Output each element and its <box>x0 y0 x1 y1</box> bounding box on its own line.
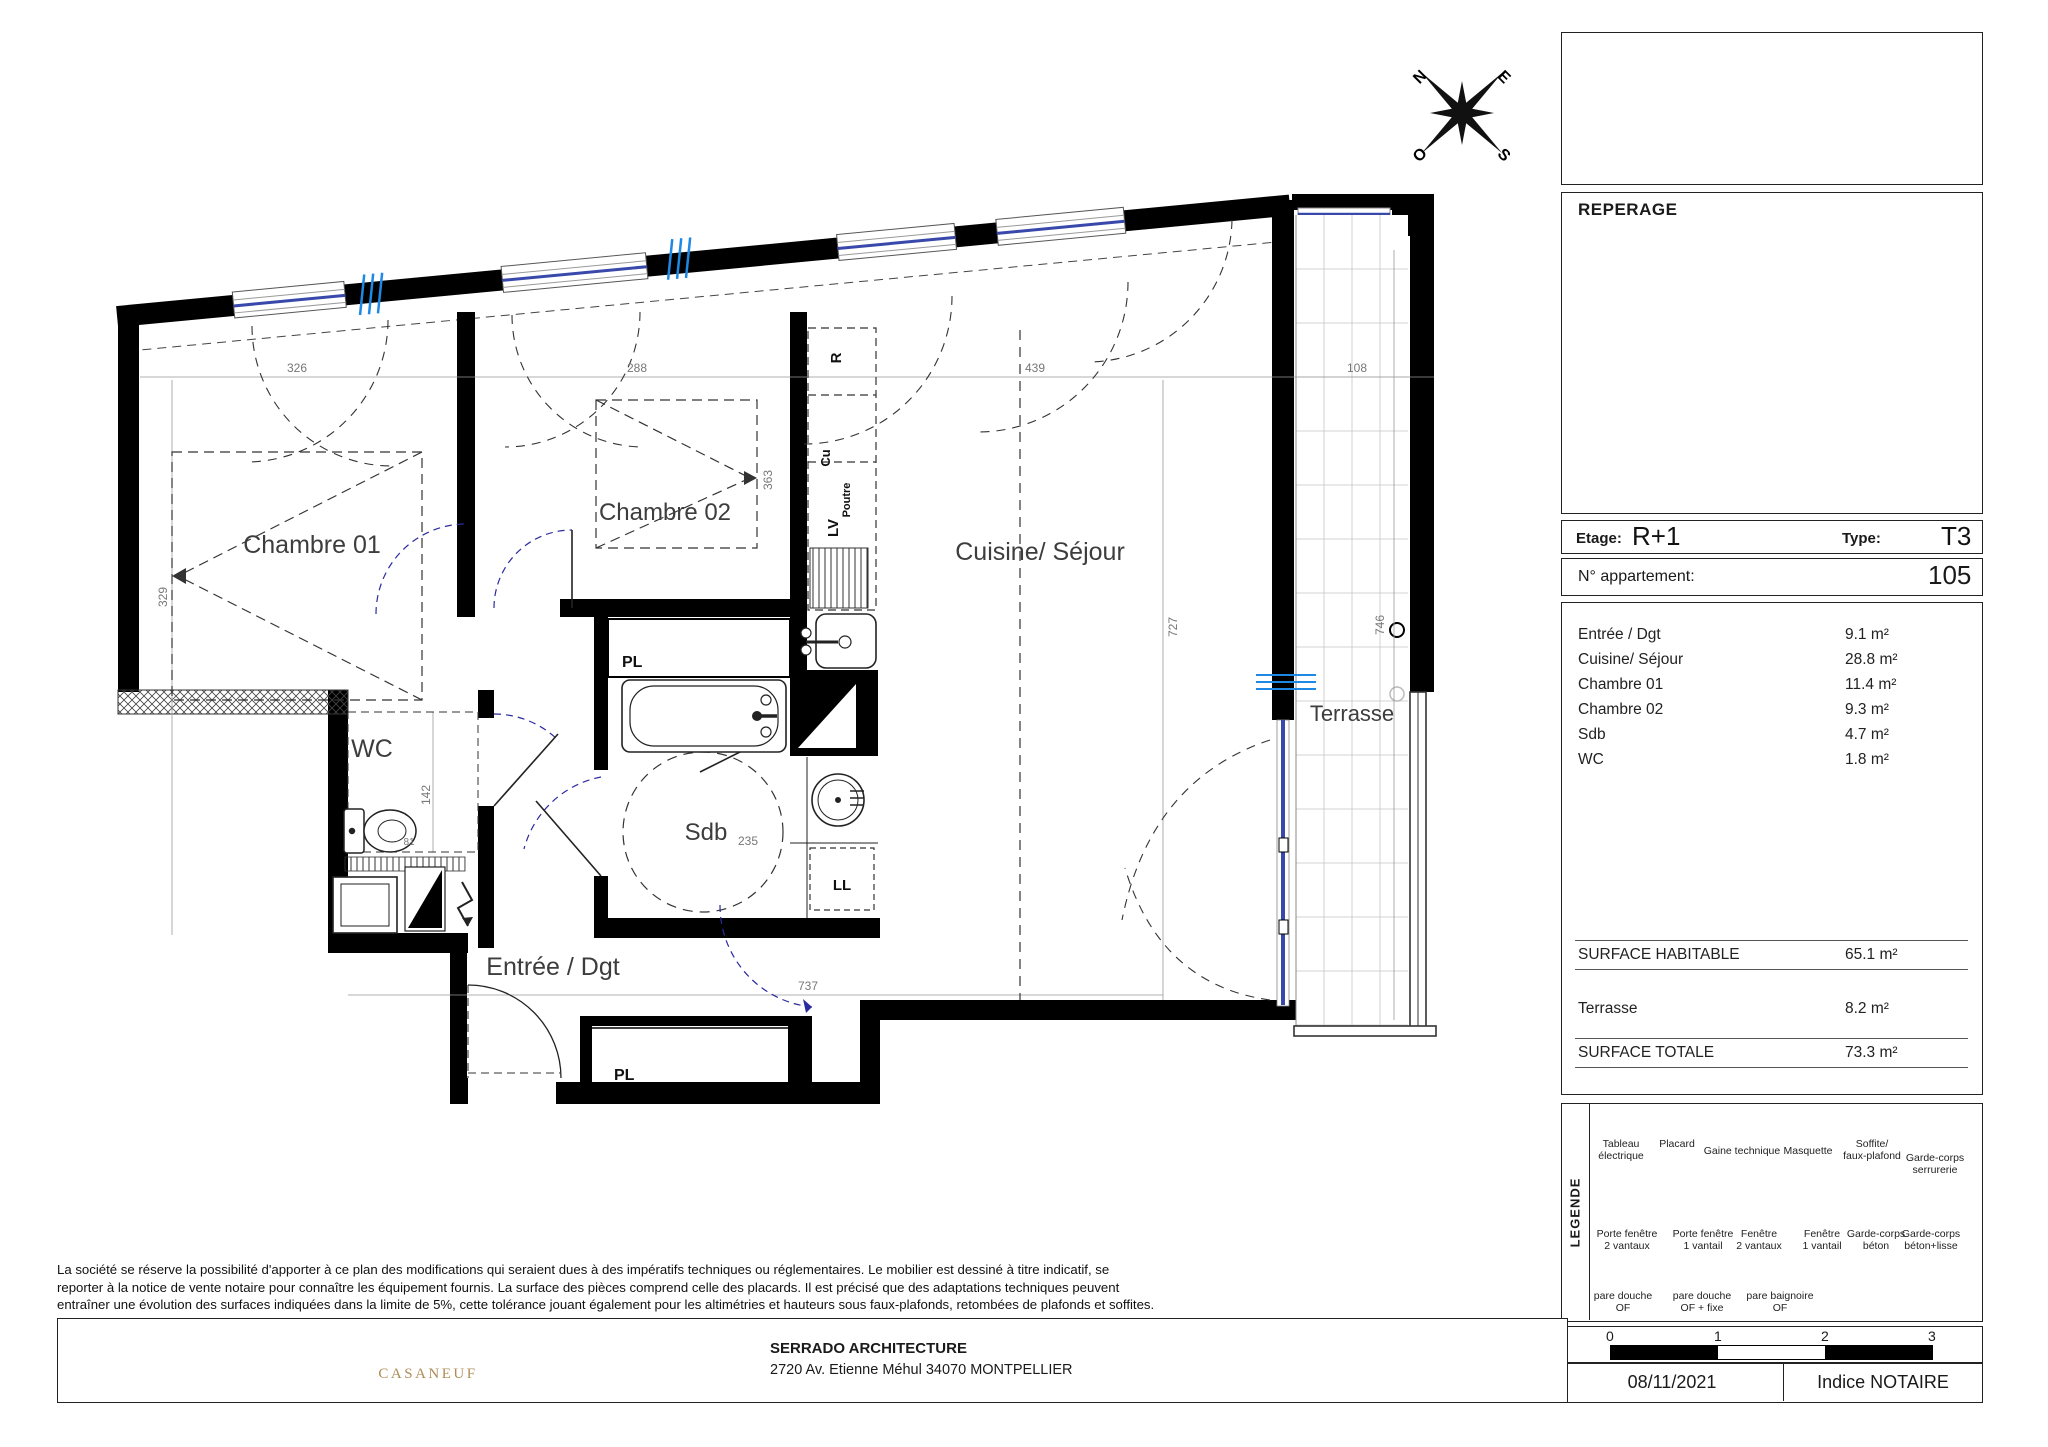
hand-basin <box>333 877 397 933</box>
type-value: T3 <box>1941 521 1971 552</box>
room-label-chambre02: Chambre 02 <box>599 499 731 526</box>
casaneuf-wordmark: CASANEUF <box>358 1366 498 1383</box>
surface-row-value: 28.8 m² <box>1845 651 1898 669</box>
etage-value: R+1 <box>1632 521 1680 552</box>
reperage-box <box>1561 192 1983 514</box>
room-label-cuisine-sejour: Cuisine/ Séjour <box>955 538 1125 566</box>
equip-label-pl-sdb: PL <box>622 654 643 671</box>
apartment-value: 105 <box>1928 560 1971 591</box>
dim-142: 142 <box>419 785 433 805</box>
dim-727: 727 <box>1166 617 1180 637</box>
dim-439: 439 <box>1025 361 1045 375</box>
legend-label: Garde-corps serrurerie <box>1890 1152 1980 1176</box>
surface-row-value: 9.3 m² <box>1845 701 1889 719</box>
exterior-top-wall <box>115 181 1293 352</box>
surface-row-label: Cuisine/ Séjour <box>1578 651 1683 669</box>
scale-bar <box>1610 1345 1933 1360</box>
surface-row-label: Sdb <box>1578 726 1606 744</box>
reperage-title: REPERAGE <box>1578 200 1677 220</box>
equip-label-lv: LV <box>825 519 842 537</box>
equip-label-poutre: Poutre <box>841 483 853 518</box>
equip-label-r: R <box>828 352 845 363</box>
legend-label: Garde-corps béton+lisse <box>1886 1228 1976 1252</box>
room-label-terrasse: Terrasse <box>1310 701 1394 726</box>
window <box>501 253 648 293</box>
bathtub <box>622 680 786 752</box>
surface-row-label: Chambre 01 <box>1578 676 1663 694</box>
type-label: Type: <box>1842 530 1881 547</box>
room-label-sdb: Sdb <box>685 819 728 846</box>
dim-288: 288 <box>627 361 647 375</box>
window <box>837 223 957 260</box>
architect-address: 2720 Av. Etienne Méhul 34070 MONTPELLIER <box>770 1362 1073 1378</box>
footer-credits-box <box>57 1318 1568 1403</box>
surface-terrasse-label: Terrasse <box>1578 1000 1637 1018</box>
plan-date: 08/11/2021 <box>1561 1372 1783 1393</box>
legend-label: pare douche OF <box>1578 1290 1668 1314</box>
scale-segment <box>1611 1346 1718 1359</box>
disclaimer-text: La société se réserve la possibilité d'a… <box>57 1261 1155 1313</box>
surface-totale-label: SURFACE TOTALE <box>1578 1044 1714 1062</box>
dim-329: 329 <box>156 587 170 607</box>
scale-tick: 3 <box>1928 1328 1936 1344</box>
surface-row-label: WC <box>1578 751 1604 769</box>
dim-363: 363 <box>761 470 775 490</box>
surface-row-value: 1.8 m² <box>1845 751 1889 769</box>
legend-title: LEGENDE <box>1568 1178 1583 1248</box>
surface-row-value: 11.4 m² <box>1845 676 1896 694</box>
kitchen-worktop-hatch <box>810 548 868 608</box>
dim-746: 746 <box>1373 615 1387 635</box>
hatched-wall <box>118 690 348 714</box>
etage-type-box <box>1561 520 1983 554</box>
scale-segment <box>1718 1346 1825 1359</box>
surface-totale-row: SURFACE TOTALE 73.3 m² <box>1575 1038 1968 1068</box>
architect-name: SERRADO ARCHITECTURE <box>770 1340 967 1357</box>
scale-tick: 1 <box>1714 1328 1722 1344</box>
surface-row-label: Chambre 02 <box>1578 701 1663 719</box>
surface-totale-value: 73.3 m² <box>1845 1044 1898 1062</box>
room-label-wc: WC <box>351 735 393 763</box>
window <box>232 281 346 317</box>
tableau-electrique-symbol <box>458 882 473 926</box>
etage-label: Etage: <box>1576 530 1622 547</box>
gaine-wedge <box>405 867 445 931</box>
legend-divider <box>1589 1104 1590 1320</box>
dim-737: 737 <box>798 979 818 993</box>
kitchen-sink <box>801 614 876 668</box>
floor-plan-sheet: { "colors": { "accent_red": "#E8231D", "… <box>0 0 2048 1447</box>
equip-label-cu: Cu <box>818 449 833 466</box>
title-cartouche-box <box>1561 32 1983 185</box>
dim-326: 326 <box>287 361 307 375</box>
dim-235: 235 <box>738 834 758 848</box>
room-label-entree: Entrée / Dgt <box>486 953 619 981</box>
surface-habitable-label: SURFACE HABITABLE <box>1578 946 1740 964</box>
surface-habitable-row: SURFACE HABITABLE 65.1 m² <box>1575 940 1968 970</box>
surface-row-label: Entrée / Dgt <box>1578 626 1661 644</box>
scale-tick: 2 <box>1821 1328 1829 1344</box>
surface-habitable-value: 65.1 m² <box>1845 946 1898 964</box>
dim-108: 108 <box>1347 361 1367 375</box>
room-label-chambre01: Chambre 01 <box>243 531 381 559</box>
window <box>996 207 1126 245</box>
legend-label: pare douche OF + fixe <box>1657 1290 1747 1314</box>
surface-row-value: 4.7 m² <box>1845 726 1889 744</box>
scale-tick: 0 <box>1606 1328 1614 1344</box>
equip-label-pl-entree: PL <box>614 1067 635 1084</box>
scale-segment <box>1825 1346 1932 1359</box>
surface-terrasse-value: 8.2 m² <box>1845 1000 1889 1018</box>
surface-terrasse-row: Terrasse 8.2 m² <box>1575 998 1968 1022</box>
dim-81: 81 <box>403 837 415 848</box>
apartment-label: N° appartement: <box>1578 568 1695 586</box>
legend-label: pare baignoire OF <box>1735 1290 1825 1314</box>
plan-indice: Indice NOTAIRE <box>1783 1372 1983 1393</box>
equip-label-ll: LL <box>833 877 851 894</box>
surface-row-value: 9.1 m² <box>1845 626 1889 644</box>
